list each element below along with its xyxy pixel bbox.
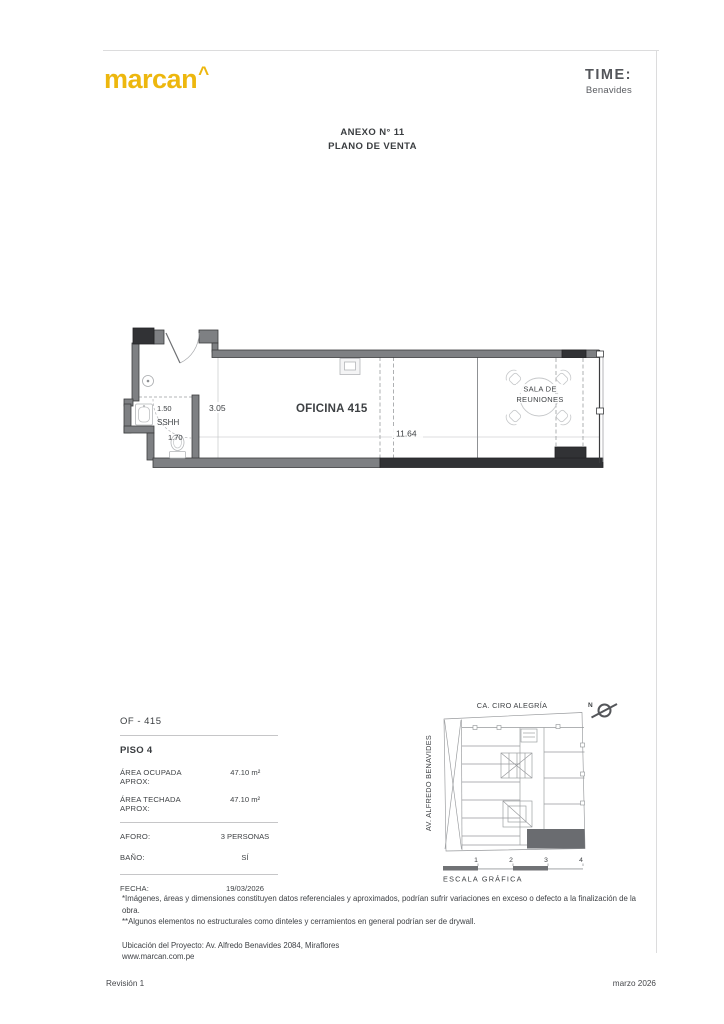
issue-date-label: marzo 2026 — [613, 979, 656, 988]
scale-caption: ESCALA GRÁFICA — [443, 875, 523, 884]
floor-drain-icon — [143, 376, 154, 387]
plan-reference-lines — [199, 357, 599, 458]
time-logo-text: TIME: — [585, 68, 632, 83]
website-link[interactable]: www.marcan.com.pe — [122, 952, 194, 961]
unit-code: OF - 415 — [120, 716, 278, 736]
marcan-logo-caret-icon: ^ — [198, 64, 209, 85]
table-row: FECHA: 19/03/2026 — [120, 884, 278, 893]
floor-label: PISO 4 — [120, 745, 278, 756]
table-row: ÁREA OCUPADA APROX: 47.10 m² — [120, 768, 278, 786]
site-location-map: CA. CIRO ALEGRÍA N AV. ALFREDO BENAVIDES — [418, 694, 630, 888]
scale-tick-4: 4 — [579, 857, 583, 864]
plan-dim-width: 11.64 — [396, 429, 417, 439]
scale-tick-2: 2 — [509, 857, 513, 864]
bathroom-flag-value: SÍ — [212, 853, 278, 862]
time-logo-subtext: Benavides — [585, 85, 632, 96]
plan-title: PLANO DE VENTA — [105, 140, 640, 154]
time-benavides-logo: TIME: Benavides — [585, 68, 632, 96]
sink-icon — [136, 404, 153, 425]
disclaimer-2: **Algunos elementos no estructurales com… — [122, 916, 649, 928]
capacity-section: AFORO: 3 PERSONAS BAÑO: SÍ — [120, 822, 278, 862]
meeting-room-label-1: SALA DE — [523, 385, 556, 394]
bath-dim-depth: 1.70 — [168, 433, 183, 442]
plan-dim-depth: 3.05 — [209, 403, 226, 413]
disclaimer-1: *Imágenes, áreas y dimensiones constituy… — [122, 893, 649, 916]
street-left-label: AV. ALFREDO BENAVIDES — [424, 735, 433, 831]
meeting-room-label-2: REUNIONES — [516, 395, 563, 404]
page-border-top — [103, 50, 659, 51]
unit-details-table: OF - 415 PISO 4 ÁREA OCUPADA APROX: 47.1… — [120, 716, 278, 902]
revision-label: Revisión 1 — [106, 979, 144, 988]
scale-bar: 1 2 3 4 — [443, 857, 583, 871]
highlighted-unit — [527, 829, 585, 849]
area-roofed-value: 47.10 m² — [212, 795, 278, 813]
date-label: FECHA: — [120, 884, 149, 893]
entry-door — [166, 333, 199, 363]
north-label: N — [588, 702, 593, 709]
document-title: ANEXO N° 11 PLANO DE VENTA — [105, 126, 640, 154]
street-top-label: CA. CIRO ALEGRÍA — [477, 701, 548, 710]
wall-panel-icon — [340, 359, 360, 375]
bathroom-flag-label: BAÑO: — [120, 853, 145, 862]
scale-tick-3: 3 — [544, 857, 548, 864]
scale-tick-1: 1 — [474, 857, 478, 864]
marcan-logo: marcan^ — [104, 64, 209, 98]
annex-title: ANEXO N° 11 — [105, 126, 640, 140]
page-border-right — [656, 50, 657, 953]
bath-dim-width: 1.50 — [157, 404, 172, 413]
sales-plan-page: marcan^ TIME: Benavides ANEXO N° 11 PLAN… — [0, 0, 724, 1024]
table-row: AFORO: 3 PERSONAS — [120, 832, 278, 841]
office-label: OFICINA 415 — [296, 403, 368, 415]
table-row: BAÑO: SÍ — [120, 853, 278, 862]
area-roofed-label: ÁREA TECHADA APROX: — [120, 795, 212, 813]
floor-plan-drawing: 1.50 SSHH 1.70 3.05 OFICINA 415 11.64 SA… — [115, 322, 610, 472]
glass-facade — [597, 350, 604, 463]
bathroom-label: SSHH — [157, 418, 179, 427]
marcan-logo-text: marcan — [104, 64, 197, 94]
area-occupied-value: 47.10 m² — [212, 768, 278, 786]
project-location: Ubicación del Proyecto: Av. Alfredo Bena… — [122, 940, 649, 952]
area-section: ÁREA OCUPADA APROX: 47.10 m² ÁREA TECHAD… — [120, 768, 278, 813]
table-row: ÁREA TECHADA APROX: 47.10 m² — [120, 795, 278, 813]
capacity-value: 3 PERSONAS — [212, 832, 278, 841]
date-section: FECHA: 19/03/2026 — [120, 874, 278, 893]
area-occupied-label: ÁREA OCUPADA APROX: — [120, 768, 212, 786]
date-value: 19/03/2026 — [212, 884, 278, 893]
footnotes: *Imágenes, áreas y dimensiones constituy… — [122, 893, 649, 963]
capacity-label: AFORO: — [120, 832, 150, 841]
north-arrow-icon: N — [588, 702, 617, 718]
